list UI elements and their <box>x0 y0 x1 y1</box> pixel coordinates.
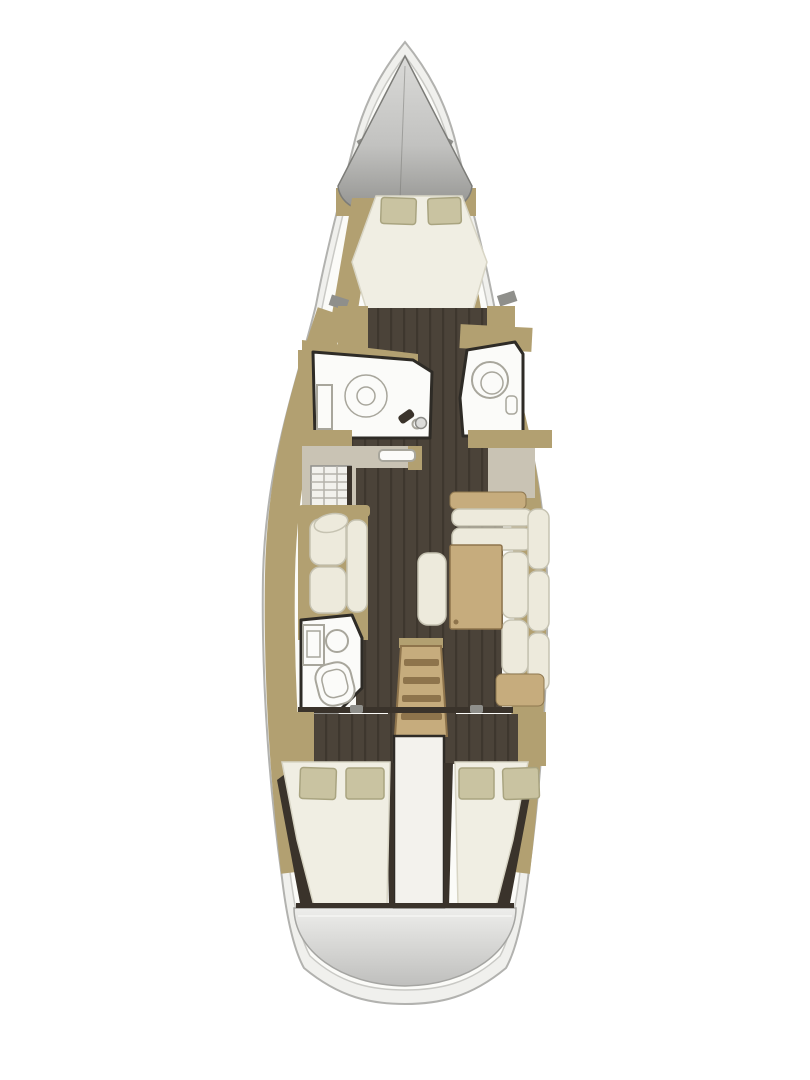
sofa-back-right-2 <box>528 571 549 631</box>
stair-tread-2 <box>403 677 440 684</box>
galley-sink <box>379 450 415 461</box>
engine-box <box>394 736 444 907</box>
mast-post <box>416 418 427 429</box>
salon-table <box>450 545 502 629</box>
sofa-back-top <box>452 509 532 526</box>
stair-tread-1 <box>404 659 439 666</box>
aft-pillow-starboard-2 <box>502 767 539 799</box>
aft-pillow-starboard-1 <box>459 768 494 799</box>
settee-cushion-2 <box>310 567 346 613</box>
forward-berth <box>352 196 487 324</box>
aft-pillow-port-1 <box>299 767 336 799</box>
deck-vent-starboard <box>497 290 518 306</box>
aft-pillow-port-2 <box>346 768 384 799</box>
stair-tread-3 <box>402 695 441 702</box>
sofa-back-shelf <box>450 492 526 509</box>
shower-locker <box>317 385 332 429</box>
bulkhead-hinge-starboard <box>470 705 483 713</box>
settee-bolster <box>347 520 367 612</box>
boat-floor-plan <box>0 0 810 1080</box>
sofa-seat-right-1 <box>502 552 528 618</box>
sofa-back-right-1 <box>528 509 549 569</box>
aft-trim-port <box>284 712 314 766</box>
sofa-seat-right-2 <box>502 620 528 674</box>
forward-pillow-starboard <box>428 197 462 224</box>
salon-bench <box>418 553 446 625</box>
sofa-corner-locker <box>496 674 544 706</box>
chart-table <box>488 448 535 498</box>
galley-top-trim <box>296 430 352 448</box>
table-leg <box>454 620 459 625</box>
aft-trim-starboard <box>518 712 546 766</box>
companionway-stairs <box>395 638 447 736</box>
nav-trim-top <box>468 430 552 448</box>
aft-head-port <box>301 615 362 712</box>
forward-pillow-port <box>381 197 417 224</box>
stair-tread-4 <box>401 713 442 720</box>
transom-line <box>296 903 514 908</box>
boat-floor-plan-canvas <box>0 0 810 1080</box>
forward-head-port <box>298 340 432 442</box>
stove-grid <box>311 466 352 506</box>
aft-head-sink <box>326 630 348 652</box>
forward-head-starboard <box>459 324 532 436</box>
bulkhead-hinge-port <box>350 705 363 713</box>
